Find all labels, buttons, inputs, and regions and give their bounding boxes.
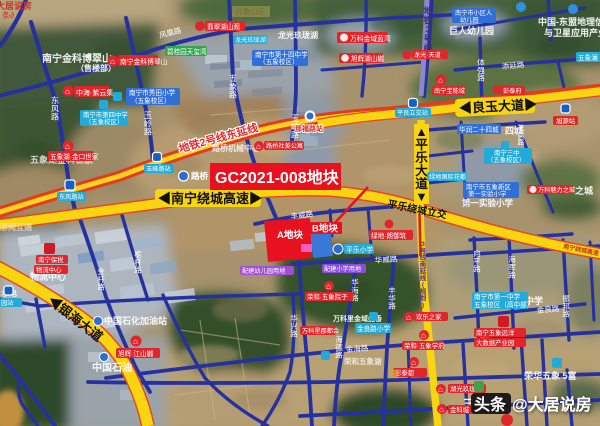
svg-text:路桥社美公寓: 路桥社美公寓 bbox=[266, 142, 303, 150]
svg-text:配建幼儿园用地: 配建幼儿园用地 bbox=[242, 267, 285, 275]
svg-text:◀南宁绕城高速▶: ◀南宁绕城高速▶ bbox=[158, 191, 262, 206]
svg-text:⌂: ⌂ bbox=[65, 87, 70, 96]
svg-text:物流中心: 物流中心 bbox=[36, 265, 62, 274]
svg-text:⌂: ⌂ bbox=[421, 331, 426, 340]
svg-text:万科星郡都会: 万科星郡都会 bbox=[302, 327, 339, 335]
svg-text:旭辉湖山樾: 旭辉湖山樾 bbox=[351, 54, 384, 63]
svg-text:五象路: 五象路 bbox=[229, 74, 237, 100]
svg-text:那福路站: 那福路站 bbox=[295, 124, 323, 133]
svg-text:南宁保税: 南宁保税 bbox=[38, 255, 64, 264]
svg-text:A地块: A地块 bbox=[277, 229, 303, 241]
svg-text:条∂: 条∂ bbox=[2, 10, 14, 20]
svg-text:中国石化加油站: 中国石化加油站 bbox=[104, 315, 167, 326]
svg-text:龙光玖珑湖: 龙光玖珑湖 bbox=[235, 36, 266, 44]
svg-text:海晖路: 海晖路 bbox=[508, 254, 516, 280]
svg-text:⌂: ⌂ bbox=[110, 57, 115, 66]
svg-text:南宁市小区人: 南宁市小区人 bbox=[455, 9, 492, 17]
svg-text:华润二十四城: 华润二十四城 bbox=[459, 125, 499, 134]
svg-text:金良路小学: 金良路小学 bbox=[357, 324, 390, 333]
svg-text:⌂: ⌂ bbox=[326, 282, 331, 291]
svg-text:第一实验小学: 第一实验小学 bbox=[462, 198, 514, 208]
svg-text:路桥机械中心: 路桥机械中心 bbox=[212, 143, 260, 153]
svg-text:玉峰路站: 玉峰路站 bbox=[146, 165, 171, 173]
svg-text:金海路: 金海路 bbox=[345, 342, 369, 354]
svg-text:南宁市秀田小学: 南宁市秀田小学 bbox=[129, 88, 176, 97]
svg-text:欢乐之家: 欢乐之家 bbox=[416, 312, 442, 321]
svg-text:荣和五象湖: 荣和五象湖 bbox=[343, 356, 382, 366]
svg-text:南宁五象远洋: 南宁五象远洋 bbox=[476, 328, 515, 337]
svg-text:平良立交站: 平良立交站 bbox=[397, 109, 428, 117]
svg-text:路桥: 路桥 bbox=[191, 171, 209, 181]
svg-text:⌂: ⌂ bbox=[65, 142, 70, 151]
svg-text:荣和·五象学府: 荣和·五象学府 bbox=[404, 341, 445, 350]
svg-text:⌂: ⌂ bbox=[439, 405, 444, 414]
svg-text:（五象校区）: （五象校区） bbox=[131, 96, 171, 105]
svg-text:东风路站: 东风路站 bbox=[59, 193, 84, 201]
svg-text:体强路: 体强路 bbox=[477, 57, 485, 83]
svg-text:万科魅力之城: 万科魅力之城 bbox=[538, 186, 575, 194]
svg-text:龙光玖珑湖: 龙光玖珑湖 bbox=[277, 30, 318, 40]
svg-text:南宁市五象新区: 南宁市五象新区 bbox=[466, 182, 511, 191]
svg-text:翡翠湖山观: 翡翠湖山观 bbox=[207, 22, 240, 31]
svg-text:大数据产业园: 大数据产业园 bbox=[476, 338, 514, 347]
svg-text:绿地国际花都: 绿地国际花都 bbox=[429, 173, 466, 181]
svg-text:中国-东盟地理信: 中国-东盟地理信 bbox=[538, 16, 600, 27]
svg-text:巨人幼儿园: 巨人幼儿园 bbox=[449, 25, 494, 36]
svg-text:金杆路: 金杆路 bbox=[97, 266, 105, 292]
svg-text:添延路: 添延路 bbox=[501, 59, 525, 71]
svg-text:平乐小学: 平乐小学 bbox=[346, 245, 373, 254]
svg-text:五象澜: 五象澜 bbox=[578, 53, 598, 62]
svg-text:桅杆路: 桅杆路 bbox=[134, 249, 142, 275]
svg-text:向平路: 向平路 bbox=[473, 248, 481, 274]
svg-text:南宁市第四中学: 南宁市第四中学 bbox=[83, 110, 128, 119]
svg-text:⌂: ⌂ bbox=[438, 76, 443, 85]
svg-text:华威路: 华威路 bbox=[374, 253, 398, 265]
svg-text:⌂: ⌂ bbox=[133, 337, 138, 346]
svg-text:中海·紫云集: 中海·紫云集 bbox=[76, 88, 113, 97]
svg-text:万科金域蓝湾: 万科金域蓝湾 bbox=[350, 34, 391, 43]
svg-text:那闻互通: 那闻互通 bbox=[0, 222, 32, 232]
svg-text:（五象校区）: （五象校区） bbox=[259, 57, 299, 66]
svg-text:四城: 四城 bbox=[505, 125, 523, 136]
svg-text:五象湖·金口世家: 五象湖·金口世家 bbox=[50, 152, 99, 161]
svg-text:@大居说房: @大居说房 bbox=[512, 395, 592, 414]
svg-text:荣和·五象院子: 荣和·五象院子 bbox=[307, 292, 348, 301]
svg-text:▲平乐大道▼: ▲平乐大道▼ bbox=[415, 125, 428, 204]
svg-text:东风路: 东风路 bbox=[51, 95, 59, 122]
svg-text:旭源站: 旭源站 bbox=[556, 116, 576, 125]
svg-text:大居说房: 大居说房 bbox=[0, 0, 32, 11]
svg-text:南宁市第一中学: 南宁市第一中学 bbox=[474, 292, 521, 301]
svg-text:彭: 彭 bbox=[390, 368, 399, 379]
svg-text:碧桂园天玺湾: 碧桂园天玺湾 bbox=[167, 47, 207, 56]
svg-text:南宁宝能城: 南宁宝能城 bbox=[434, 87, 465, 95]
svg-text:绿地·朗御筑: 绿地·朗御筑 bbox=[371, 231, 407, 240]
svg-text:白象山庄: 白象山庄 bbox=[235, 6, 265, 16]
svg-text:⌂: ⌂ bbox=[256, 142, 261, 151]
svg-text:GC2021-008地块: GC2021-008地块 bbox=[215, 168, 340, 187]
svg-text:南宁三中: 南宁三中 bbox=[494, 148, 520, 157]
svg-text:⌂: ⌂ bbox=[438, 385, 443, 394]
svg-text:（五象校区）: （五象校区） bbox=[487, 155, 525, 164]
svg-text:振邦路: 振邦路 bbox=[562, 293, 570, 319]
svg-text:华兴路: 华兴路 bbox=[290, 313, 298, 339]
svg-text:南宁市第十四中学: 南宁市第十四中学 bbox=[255, 50, 308, 59]
svg-text:头条: 头条 bbox=[474, 395, 507, 414]
svg-text:中国石油: 中国石油 bbox=[92, 361, 132, 374]
svg-text:配建小学用地: 配建小学用地 bbox=[324, 265, 361, 273]
svg-text:彭泰府: 彭泰府 bbox=[503, 87, 522, 95]
svg-text:荣华五象 5富: 荣华五象 5富 bbox=[523, 370, 577, 381]
svg-text:⌂: ⌂ bbox=[411, 358, 416, 367]
svg-text:丰华路: 丰华路 bbox=[388, 285, 396, 311]
svg-text:3号线南延线(规划): 3号线南延线(规划) bbox=[419, 241, 427, 309]
svg-text:玉岭路: 玉岭路 bbox=[144, 111, 152, 137]
svg-text:之城: 之城 bbox=[575, 185, 593, 196]
svg-text:与卫星应用产业: 与卫星应用产业 bbox=[544, 27, 600, 38]
svg-text:龙光·天道: 龙光·天道 bbox=[414, 51, 441, 59]
svg-text:园站: 园站 bbox=[1, 299, 13, 307]
svg-text:旭辉·江山樾: 旭辉·江山樾 bbox=[118, 349, 154, 358]
svg-text:五象校区（高中部）: 五象校区（高中部） bbox=[474, 300, 533, 309]
svg-text:南宁金科博翠山: 南宁金科博翠山 bbox=[120, 57, 168, 66]
svg-text:⌂: ⌂ bbox=[406, 313, 411, 322]
svg-text:（五象校区）: （五象校区） bbox=[85, 117, 123, 126]
svg-text:金科城: 金科城 bbox=[450, 405, 470, 414]
svg-text:幼儿园: 幼儿园 bbox=[460, 16, 479, 24]
svg-text:海德路: 海德路 bbox=[335, 334, 343, 360]
svg-text:第一实验小学: 第一实验小学 bbox=[468, 189, 507, 198]
